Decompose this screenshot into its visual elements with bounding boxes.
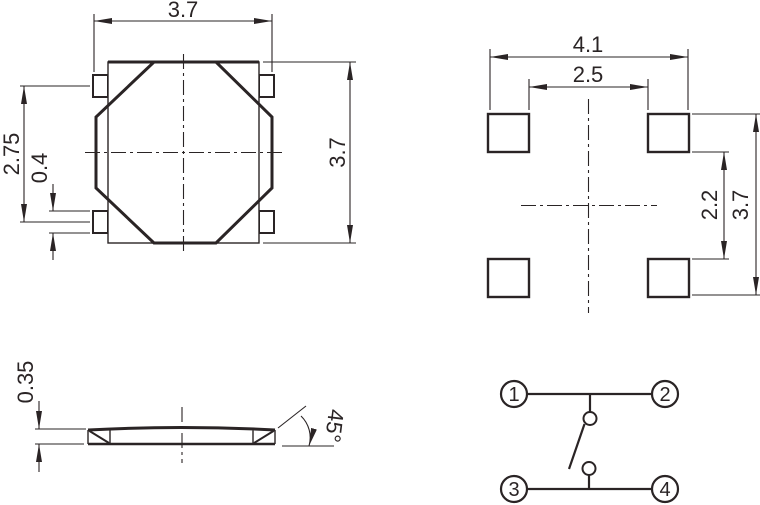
land-pad-bottom-left — [488, 259, 529, 297]
dim-label-thickness: 0.35 — [13, 361, 38, 404]
land-pad-top-right — [648, 114, 689, 152]
dim-label-width: 3.7 — [168, 0, 199, 22]
dim-label-pad-width: 0.4 — [27, 153, 52, 184]
dim-label-outer-height: 3.7 — [728, 190, 753, 221]
pin-1-label: 1 — [508, 384, 519, 406]
pin-2-label: 2 — [659, 384, 670, 406]
dim-label-outer-width: 4.1 — [573, 32, 604, 57]
switch-contact-bottom — [583, 462, 596, 475]
left-chamfer-diagonal — [90, 431, 110, 443]
dimension-pad-width: 0.4 — [27, 153, 90, 260]
schematic-view: 1 2 3 4 — [501, 381, 678, 502]
drawing-canvas: 3.7 3.7 2.75 0.4 — [0, 0, 760, 505]
pin-4-label: 4 — [659, 479, 670, 501]
technical-drawing-sheet: 3.7 3.7 2.75 0.4 — [0, 0, 760, 505]
land-pattern-view: 4.1 2.5 2.2 3.7 — [488, 32, 760, 313]
pad-top-left — [93, 75, 108, 97]
right-chamfer-diagonal — [254, 431, 274, 443]
dim-label-height: 3.7 — [325, 137, 350, 168]
side-view: 0.35 45° — [13, 361, 349, 472]
dim-label-inner-height: 2.2 — [697, 190, 722, 221]
dimension-edge-angle: 45° — [278, 406, 349, 446]
pad-bottom-left — [93, 211, 108, 233]
dim-label-inner-width: 2.5 — [573, 62, 604, 87]
dim-label-edge-angle: 45° — [320, 408, 349, 444]
switch-contact-top — [584, 412, 597, 425]
land-pattern-centerlines — [521, 99, 657, 313]
dim-label-pad-span: 2.75 — [0, 133, 24, 176]
pad-top-right — [259, 75, 274, 97]
dimension-land-inner-height: 2.2 — [692, 152, 729, 259]
land-pad-top-left — [488, 114, 529, 152]
pad-bottom-right — [259, 211, 274, 233]
top-view: 3.7 3.7 2.75 0.4 — [0, 0, 356, 260]
schematic-wiring — [527, 394, 652, 489]
switch-arm — [569, 424, 585, 469]
dimension-thickness: 0.35 — [13, 361, 86, 472]
land-pad-bottom-right — [648, 259, 689, 297]
pin-3-label: 3 — [508, 479, 519, 501]
